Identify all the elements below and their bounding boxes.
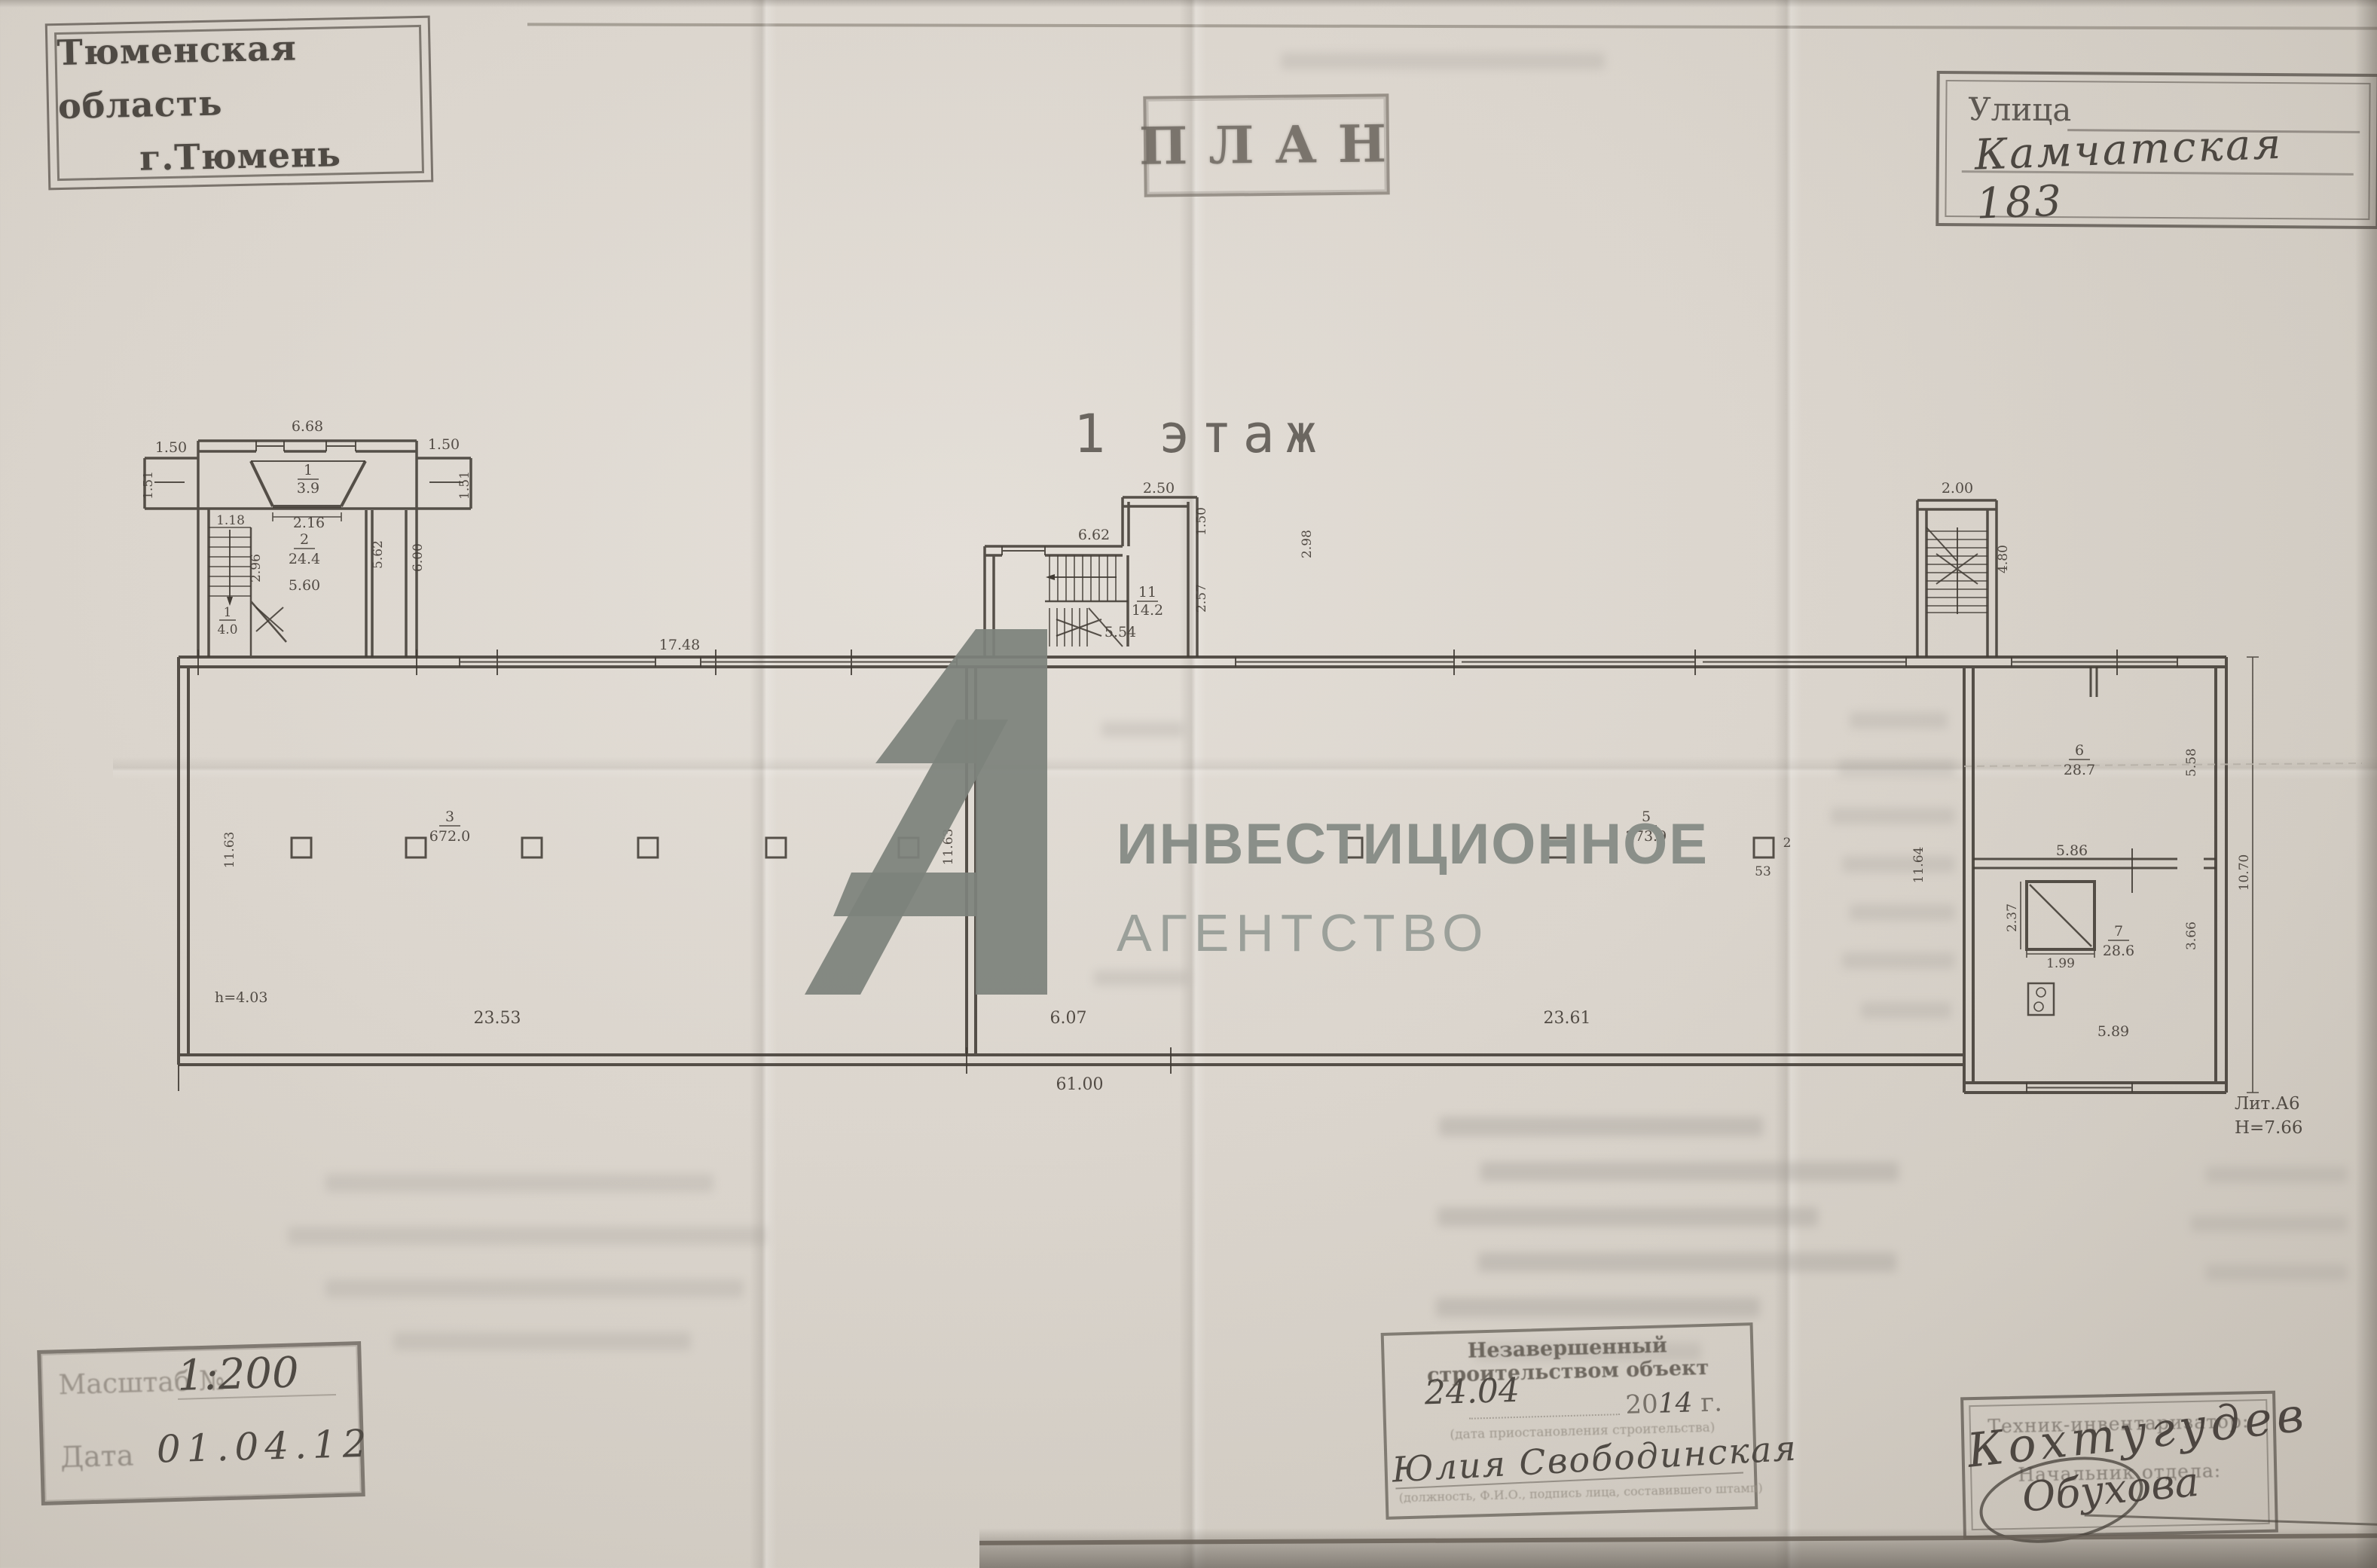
bleed-through-text: [1436, 1297, 1760, 1317]
room-area: 28.7: [2064, 762, 2095, 778]
bleed-through-text: [1480, 1162, 1899, 1181]
bleed-through-text: [393, 1332, 691, 1350]
dim-label: 2.16: [293, 515, 325, 531]
room-area: 28.6: [2103, 943, 2134, 959]
room-number: 7: [2114, 923, 2123, 940]
unfinished-object-stamp: Незавершенный строительством объект 24.0…: [1381, 1322, 1758, 1520]
year-prefix: 20: [1625, 1389, 1658, 1420]
dim-label: 5.62: [371, 540, 386, 569]
dim-label: 2.98: [1300, 530, 1315, 558]
room-number: 3: [445, 808, 454, 825]
dim-label: 2.96: [249, 554, 264, 582]
watermark-logo: ИНВЕСТИЦИОННОЕ АГЕНТСТВО: [805, 629, 1709, 995]
dim-label: 6.07: [1050, 1009, 1087, 1028]
dim-label: 1.50: [428, 436, 460, 453]
dim-label: 23.61: [1544, 1009, 1591, 1028]
a1-logo-crossbar: [833, 873, 976, 916]
dim-label: 6.62: [1078, 527, 1110, 543]
dim-label: 10.70: [2237, 854, 2252, 891]
dim-label: 11.64: [1911, 847, 1926, 884]
region-stamp: Тюменская область г.Тюмень: [45, 16, 434, 191]
dim-label: 1.18: [216, 513, 245, 528]
dim-label: 2.57: [1194, 584, 1209, 613]
dim-label: 1.99: [2046, 956, 2075, 971]
handwritten-date: 24.04: [1424, 1371, 1520, 1412]
dim-label: 5.54: [1104, 624, 1136, 640]
dim-label: 11.63: [222, 832, 237, 869]
dim-label: 3.66: [2184, 922, 2199, 950]
room-area: 24.4: [289, 551, 320, 567]
date-handwritten-value: 01.04.12: [156, 1422, 373, 1472]
dim-label: 23.53: [474, 1009, 521, 1028]
date-label: Дата: [60, 1439, 134, 1475]
technician-stamp: Техник-инвентаризатор: Начальник отдела:…: [1960, 1391, 2278, 1539]
dim-label: 1.51: [143, 471, 156, 500]
room-number: 2: [300, 531, 309, 548]
year-line: 2014 г.: [1625, 1386, 1723, 1420]
signature-stroke: [2085, 1515, 2377, 1527]
region-name: Тюменская область: [57, 19, 421, 134]
bleed-through-text: [325, 1279, 744, 1297]
building-height-note: Н=7.66: [2235, 1118, 2303, 1138]
room-area: 14.2: [1132, 602, 1163, 619]
floor-plan-drawing: 6.68 1.50 1.50 1.51 1.51 1 3.9 2.16 1.18…: [143, 407, 2366, 1153]
scale-handwritten-value: 1:200: [176, 1348, 299, 1400]
a1-logo-bar: [976, 629, 1047, 995]
watermark-line2: АГЕНТСТВО: [1117, 903, 1489, 962]
room-area: 672.0: [429, 828, 470, 845]
bleed-through-text: [1478, 1252, 1896, 1272]
scale-date-stamp: Масштаб № 1:200 Дата 01.04.12: [37, 1341, 365, 1505]
dim-label: 4.80: [1996, 545, 2011, 573]
page-seam-line: [527, 23, 2377, 29]
photo-edge-shadow: [2355, 0, 2377, 1568]
bleed-through-text: [288, 1227, 766, 1245]
technician-stamp-frame: Техник-инвентаризатор: Начальник отдела:…: [1969, 1399, 2269, 1530]
scale-row: Масштаб № 1:200: [41, 1345, 359, 1428]
street-label: Улица: [1968, 90, 2071, 128]
dim-label: 61.00: [1056, 1075, 1104, 1094]
photo-edge-shadow: [0, 0, 2377, 8]
city-name: г.Тюмень: [139, 127, 341, 185]
dim-label: 1.50: [1194, 507, 1209, 536]
bleed-through-text: [2191, 1215, 2348, 1232]
ceiling-height-note: h=4.03: [215, 989, 267, 1006]
room-number: 1: [304, 462, 313, 478]
bleed-through-text: [1438, 1207, 1818, 1227]
dim-label: 5.58: [2184, 748, 2199, 777]
dim-label: 2.00: [1942, 480, 1973, 497]
dim-label: 6.68: [292, 418, 323, 435]
dim-label: 2.50: [1143, 480, 1175, 497]
watermark-line1: ИНВЕСТИЦИОННОЕ: [1117, 812, 1709, 876]
dim-label: 4.0: [217, 622, 237, 637]
ruled-line: [1469, 1414, 1620, 1420]
bleed-through-text: [2206, 1264, 2348, 1281]
plan-walls: [145, 441, 2362, 1093]
dim-label: 2.37: [2005, 903, 2020, 932]
street-stamp: Улица Камчатская 183: [1936, 71, 2377, 229]
dim-label: 17.48: [659, 637, 700, 653]
dim-label: 6.00: [411, 543, 426, 572]
bleed-through-text: [325, 1174, 713, 1192]
room-number: 2: [1783, 836, 1792, 851]
region-stamp-frame: Тюменская область г.Тюмень: [54, 25, 424, 181]
room-area: 53: [1755, 864, 1771, 879]
bleed-through-text: [1281, 53, 1605, 69]
dim-label: 5.60: [289, 577, 320, 594]
dim-label: 5.86: [2056, 842, 2088, 859]
date-row: Дата 01.04.12: [43, 1419, 362, 1502]
year-suffix: г.: [1692, 1387, 1723, 1418]
room-area: 3.9: [297, 480, 319, 497]
room-number: 11: [1138, 584, 1156, 601]
litera-label: Лит.А6: [2235, 1094, 2300, 1114]
dim-label: 5.89: [2097, 1023, 2129, 1040]
plan-dimension-labels: 6.68 1.50 1.50 1.51 1.51 1 3.9 2.16 1.18…: [143, 418, 2303, 1138]
dim-label: 1.50: [155, 439, 187, 456]
plan-title-stamp: ПЛАН: [1143, 93, 1389, 197]
dim-label: 1: [224, 605, 232, 620]
dim-label: 1.51: [457, 471, 472, 500]
handwritten-year: 14: [1657, 1387, 1693, 1419]
street-stamp-frame: Улица Камчатская 183: [1945, 80, 2370, 220]
room-number: 6: [2075, 742, 2084, 759]
bleed-through-text: [2206, 1166, 2348, 1183]
photographed-floor-plan-document: { "doc": { "region_stamp": { "line1": "Т…: [0, 0, 2377, 1568]
